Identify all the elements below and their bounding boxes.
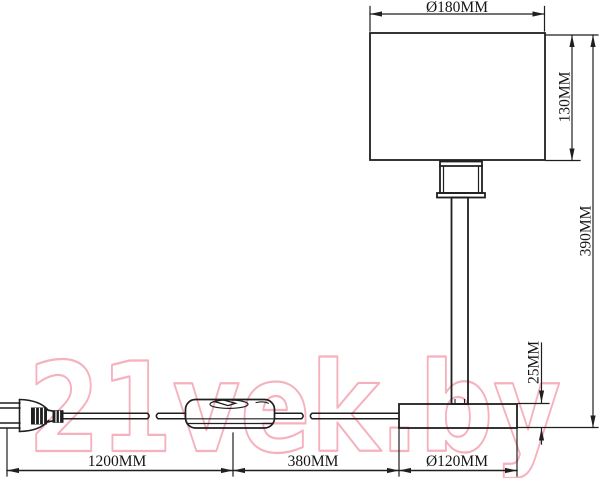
inline-switch [186,400,275,429]
lamp-socket [437,162,485,198]
dim-switch-to-base-label: 380MM [288,453,339,470]
lamp-shade [370,33,545,160]
lamp-base [399,404,517,428]
lamp-pole [452,198,469,405]
drawing-layer: Ø180MM 130MM 390MM 25MM 1200MM 380MM Ø12… [0,0,600,478]
plug-strain-relief [53,410,64,423]
power-cord [63,413,399,418]
power-plug [0,400,64,432]
dim-base-diameter-label: Ø120MM [426,453,488,470]
dim-shade-diameter-label: Ø180MM [426,0,488,16]
dim-total-height-label: 390MM [578,205,595,256]
dim-cord-length-label: 1200MM [88,453,147,470]
dim-shade-height-label: 130MM [557,71,574,122]
dim-base-height-label: 25MM [526,341,543,384]
switch-seams [187,419,274,424]
switch-end-detail [256,402,269,403]
plug-prongs [0,403,20,428]
lamp-technical-drawing: 21vek.by [0,0,600,478]
